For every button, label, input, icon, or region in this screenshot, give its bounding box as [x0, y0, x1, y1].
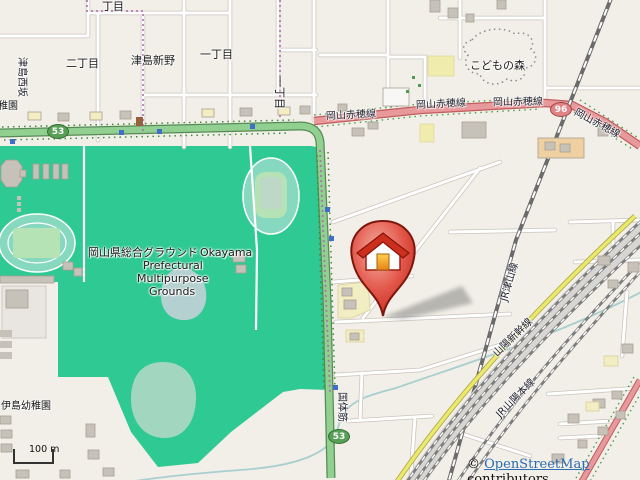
place-label-itchome: 一丁目 [200, 49, 233, 60]
openstreetmap-link[interactable]: OpenStreetMap [484, 457, 589, 472]
poi-label-ijima-kindergarten: 伊島幼稚園 [1, 402, 51, 412]
bus-stop-icon [325, 207, 330, 212]
bus-stop-icon [10, 139, 15, 144]
map-canvas [0, 0, 640, 480]
tree-icon [406, 90, 409, 93]
road-label-west-street: 津島西坂 [16, 57, 26, 97]
place-label-itchome-east: 一丁目 [274, 76, 285, 109]
tree-icon [418, 84, 421, 87]
contributors-text: contributors [467, 472, 549, 480]
map-attribution: © OpenStreetMap contributors [467, 457, 640, 480]
park-name-en-line1: Okayama [200, 247, 252, 258]
park-name-en-line2: Prefectural [143, 260, 203, 271]
copyright-symbol: © [467, 457, 484, 472]
bus-stop-icon [329, 236, 334, 241]
route-shield-53-south: 53 [328, 429, 350, 444]
place-label-tsushima-shinno: 津島新野 [131, 55, 175, 66]
bus-stop-icon [333, 385, 338, 390]
place-label-chome-top: 丁目 [102, 1, 124, 12]
bus-stop-icon [157, 129, 162, 134]
route-shield-53: 53 [47, 124, 69, 139]
shrine-icon [136, 117, 143, 126]
tree-icon [412, 76, 415, 79]
park-name-ja: 岡山県総合グラウンド [88, 247, 198, 258]
road-label-kokutai-suji: 国体筋 [336, 392, 346, 422]
park-name-en-line4: Grounds [149, 286, 195, 297]
road-label-ako-line-3: 岡山赤穂線 [493, 98, 543, 109]
scale-bar [13, 449, 54, 464]
poi-label-kindergarten-partial: 稚園 [0, 102, 18, 112]
bus-stop-icon [119, 130, 124, 135]
map-viewport[interactable]: 丁目 二丁目 津島新野 一丁目 一丁目 こどもの森 岡山赤穂線 岡山赤穂線 岡山… [0, 0, 640, 480]
place-label-kodomo-no-mori: こどもの森 [470, 60, 525, 71]
bus-stop-icon [250, 124, 255, 129]
route-shield-96: 96 [550, 102, 572, 117]
place-label-nichome: 二丁目 [66, 58, 99, 69]
park-name-en-line3: Multipurpose [137, 273, 209, 284]
